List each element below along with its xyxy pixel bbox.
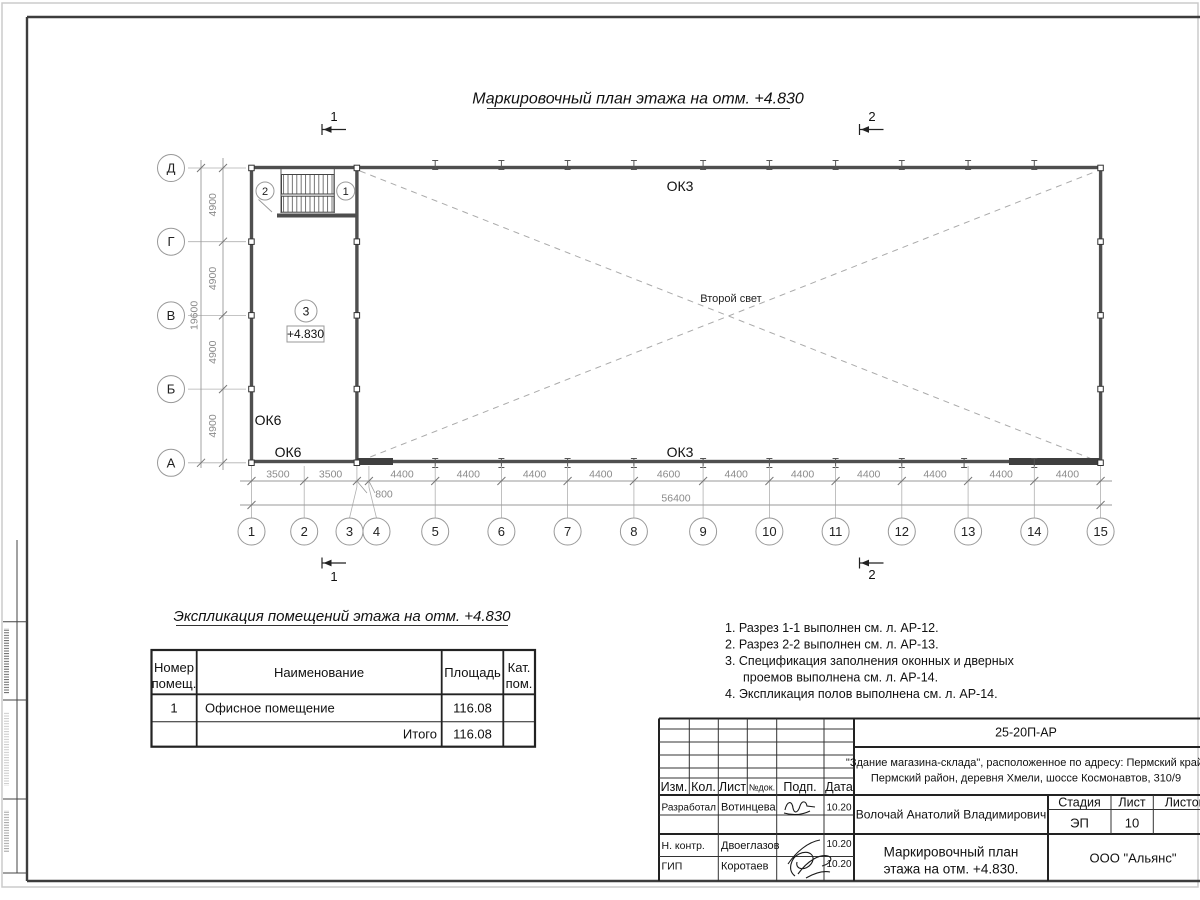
row-date: 10.20 [826, 803, 851, 814]
col-ndok: №док. [749, 783, 775, 793]
col-izm: Изм. [661, 780, 688, 794]
axis-number: 9 [699, 524, 706, 539]
window-mark-ok6-lower: ОК6 [275, 444, 302, 460]
axis-letter: Б [167, 382, 176, 397]
axis-number: 6 [498, 524, 505, 539]
col-header-number-2: помещ. [152, 676, 197, 691]
explication-title: Экспликация помещений этажа на отм. +4.8… [173, 608, 511, 625]
row-date: 10.20 [826, 839, 851, 850]
row-role: ГИП [662, 861, 683, 873]
axis-letter: Д [167, 161, 176, 176]
col-data: Дата [825, 780, 853, 794]
dim-value: 3500 [319, 469, 343, 481]
paper-edge [2, 3, 1198, 887]
col-header-area: Площадь [444, 665, 501, 680]
note-line: проемов выполнена см. л. АР-14. [743, 671, 938, 685]
dim-value: 4400 [1056, 469, 1080, 481]
dim-value: 4400 [523, 469, 547, 481]
axis-number: 4 [373, 524, 380, 539]
plan-title: Маркировочный план этажа на отм. +4.830 [472, 91, 804, 108]
dim-value: 3500 [266, 469, 290, 481]
dim-value-800: 800 [375, 489, 393, 501]
window-mark-ok3-top: ОК3 [667, 178, 694, 194]
dim-total-bottom: 56400 [661, 493, 690, 505]
dim-value: 4600 [657, 469, 681, 481]
section-2-label-bottom: 2 [868, 567, 875, 582]
axis-letter: А [167, 455, 176, 470]
level-mark: +4.830 [287, 327, 324, 341]
note-line: 1. Разрез 1-1 выполнен см. л. АР-12. [725, 621, 939, 635]
stair-bubble-left-label: 2 [262, 186, 268, 198]
sheet-value: 10 [1125, 816, 1139, 831]
dim-value: 4900 [207, 267, 219, 291]
dim-value: 4400 [857, 469, 881, 481]
room-number-cell: 1 [170, 701, 177, 716]
section-1-label-bottom: 1 [330, 569, 337, 584]
col-header-cat-2: пом. [506, 676, 533, 691]
dim-value: 4400 [725, 469, 749, 481]
col-header-cat-1: Кат. [508, 660, 531, 675]
row-name: Двоеглазов [721, 840, 780, 852]
room-bubble-label: 3 [303, 305, 310, 319]
axis-number: 12 [895, 524, 909, 539]
note-line: 4. Экспликация полов выполнена см. л. АР… [725, 687, 998, 701]
dim-value: 4400 [390, 469, 414, 481]
axis-number: 13 [961, 524, 975, 539]
col-kol: Кол. [691, 780, 716, 794]
total-area: 116.08 [453, 727, 492, 742]
axis-number: 14 [1027, 524, 1041, 539]
stair-flight-lower [282, 196, 335, 212]
axis-number: 1 [248, 524, 255, 539]
stage-value: ЭП [1070, 816, 1089, 831]
axis-letter: Г [167, 234, 174, 249]
axis-letter: В [167, 308, 176, 323]
row-role: Разработал [662, 802, 717, 814]
col-list: Лист [719, 780, 746, 794]
stair-flight-upper [282, 175, 335, 195]
col-header-name: Наименование [274, 665, 364, 680]
room-area-cell: 116.08 [453, 701, 492, 716]
stage-label: Стадия [1058, 796, 1101, 810]
drawing-sheet: Маркировочный план этажа на отм. +4.830 … [0, 0, 1200, 900]
company-name: ООО "Альянс" [1090, 851, 1177, 866]
margin-stamp-text [4, 810, 9, 852]
dim-value: 4900 [207, 193, 219, 217]
axis-number: 3 [346, 524, 353, 539]
doc-code: 25-20П-АР [995, 726, 1057, 740]
chief-name: Волочай Анатолий Владимирович [856, 808, 1047, 822]
sheet-label: Лист [1118, 796, 1145, 810]
axis-number: 7 [564, 524, 571, 539]
project-address-line1: "Здание магазина-склада", расположенное … [846, 757, 1200, 769]
axis-number: 2 [301, 524, 308, 539]
drawing-title-line2: этажа на отм. +4.830. [884, 862, 1019, 877]
section-1-label-top: 1 [330, 109, 337, 124]
row-name: Вотинцева [721, 802, 776, 814]
col-podp: Подп. [783, 780, 816, 794]
margin-stamp-text [4, 712, 9, 786]
window-mark-ok6-upper: ОК6 [255, 412, 282, 428]
sheets-label: Листов [1165, 796, 1200, 810]
dim-total-left: 19600 [189, 301, 201, 330]
col-header-number-1: Номер [154, 660, 194, 675]
dim-value: 4400 [791, 469, 815, 481]
axis-number: 11 [829, 524, 843, 539]
axis-number: 10 [762, 524, 776, 539]
drawing-title-line1: Маркировочный план [884, 845, 1019, 860]
room-name-cell: Офисное помещение [205, 701, 335, 716]
dim-value: 4400 [990, 469, 1014, 481]
dim-value: 4400 [457, 469, 481, 481]
project-address-line2: Пермский район, деревня Хмели, шоссе Кос… [871, 773, 1181, 785]
section-2-label-top: 2 [868, 109, 875, 124]
note-line: 3. Спецификация заполнения оконных и две… [725, 654, 1015, 668]
row-name: Коротаев [721, 861, 769, 873]
dim-value: 4900 [207, 340, 219, 364]
margin-stamp-text [4, 628, 9, 694]
total-label: Итого [403, 727, 437, 742]
axis-number: 15 [1093, 524, 1107, 539]
note-line: 2. Разрез 2-2 выполнен см. л. АР-13. [725, 638, 939, 652]
row-role: Н. контр. [662, 840, 705, 852]
dim-value: 4400 [589, 469, 613, 481]
dim-value: 4900 [207, 414, 219, 438]
second-light-label: Второй свет [700, 293, 761, 305]
dim-value: 4400 [923, 469, 947, 481]
stair-bubble-right-label: 1 [343, 186, 349, 198]
axis-number: 5 [432, 524, 439, 539]
axis-number: 8 [630, 524, 637, 539]
window-mark-ok3-bottom: ОК3 [667, 444, 694, 460]
